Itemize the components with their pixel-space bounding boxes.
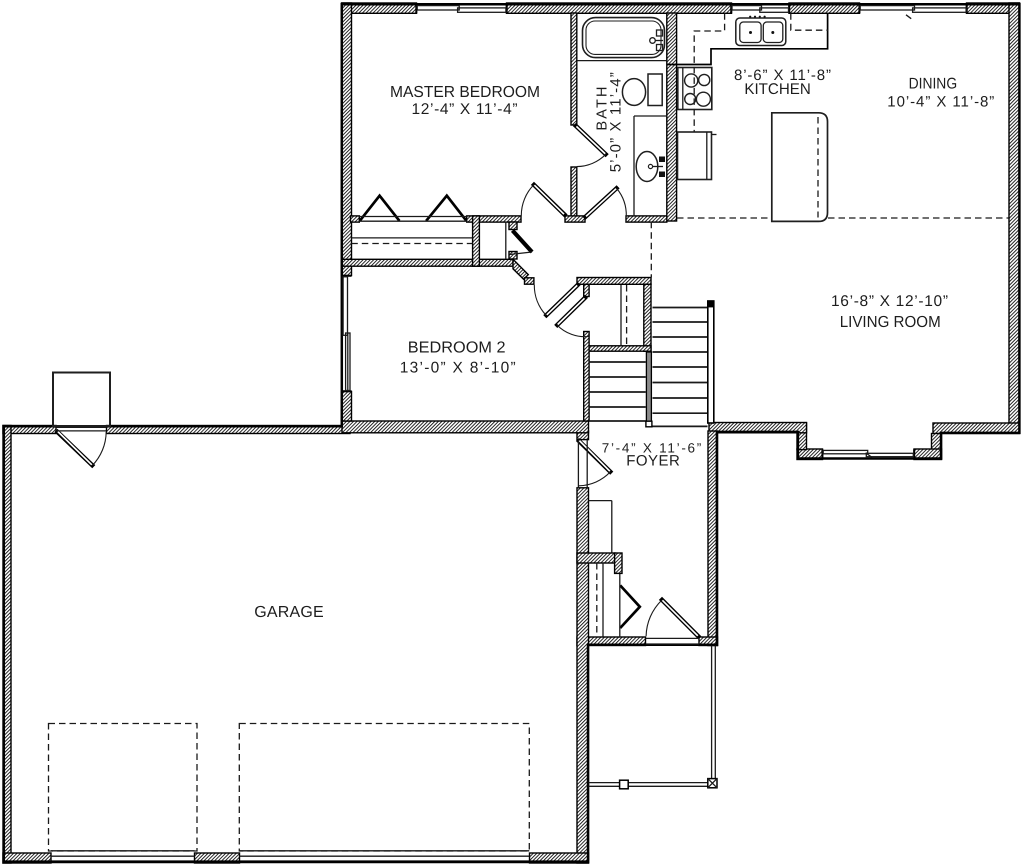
svg-text:MASTER BEDROOM: MASTER BEDROOM: [390, 84, 540, 101]
svg-text:5’-0” X 11’-4”: 5’-0” X 11’-4”: [608, 72, 625, 172]
svg-text:FOYER: FOYER: [626, 452, 680, 469]
svg-text:BEDROOM 2: BEDROOM 2: [408, 340, 506, 357]
svg-text:LIVING ROOM: LIVING ROOM: [840, 314, 941, 331]
svg-text:13’-0” X 8’-10”: 13’-0” X 8’-10”: [400, 359, 516, 376]
svg-text:16’-8” X 12’-10”: 16’-8” X 12’-10”: [831, 293, 948, 310]
svg-text:12’-4” X 11’-4”: 12’-4” X 11’-4”: [412, 101, 518, 118]
svg-text:10’-4” X 11’-8”: 10’-4” X 11’-8”: [887, 94, 994, 111]
svg-text:DINING: DINING: [909, 75, 958, 92]
svg-text:KITCHEN: KITCHEN: [744, 81, 810, 98]
svg-text:GARAGE: GARAGE: [254, 604, 324, 621]
